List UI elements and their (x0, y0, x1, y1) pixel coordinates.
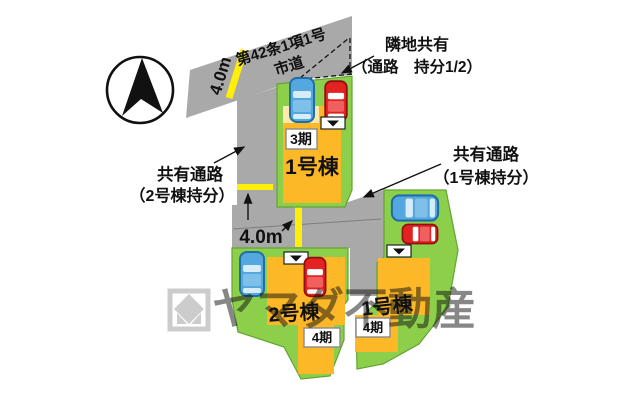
annotation-neighbor-shared: 隣地共有 （通路 持分1/2） (342, 35, 482, 76)
watermark: ヤマダ不動産 (170, 285, 476, 334)
annotation-text: 共有通路 (453, 144, 520, 164)
lot-name: 1号棟 (285, 155, 340, 179)
car-icon-blue (290, 78, 314, 122)
annotation-text: 共有通路 (157, 164, 224, 184)
annotation-text: （通路 持分1/2） (352, 57, 482, 76)
path-width-tick-horizontal (237, 184, 273, 190)
annotation-shared-path-bldg2: 共有通路 （2号棟持分） (130, 147, 244, 205)
site-plan: 第42条1項1号 市道 4.0m 3期 1号棟 2号棟 4期 (0, 0, 640, 412)
site-plan-canvas: 第42条1項1号 市道 4.0m 3期 1号棟 2号棟 4期 (0, 0, 640, 412)
path-width-label: 4.0m (239, 227, 282, 248)
car-icon-red (402, 224, 437, 243)
lot-top: 3期 1号棟 (277, 76, 352, 207)
entrance-marker-icon (321, 117, 345, 129)
car-icon-red (325, 81, 347, 121)
annotation-shared-path-bldg1: 共有通路 （1号棟持分） (364, 144, 538, 197)
annotation-text: （2号棟持分） (130, 186, 235, 205)
watermark-text: ヤマダ不動産 (212, 285, 476, 334)
path-width-tick-vertical (295, 205, 302, 247)
annotation-text: 隣地共有 (385, 35, 449, 54)
phase-label: 3期 (290, 131, 312, 147)
entrance-marker-icon (387, 245, 411, 257)
car-icon-blue (392, 195, 438, 220)
north-arrow-icon (107, 57, 173, 123)
annotation-text: （1号棟持分） (434, 168, 539, 187)
